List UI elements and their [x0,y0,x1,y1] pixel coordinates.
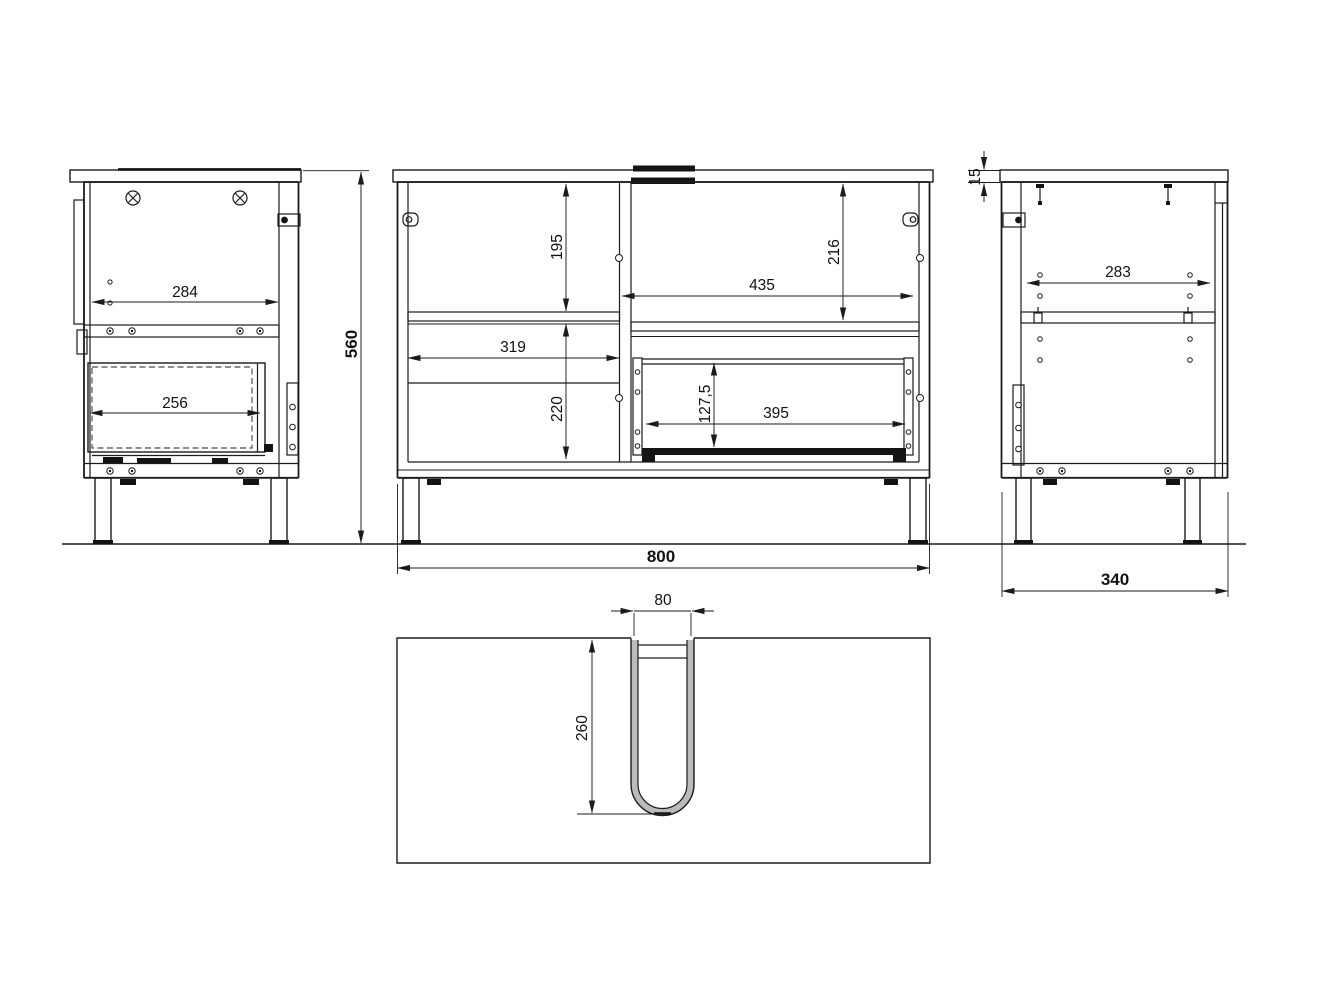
carcass-outline [84,182,299,478]
bottom-panel [84,464,299,475]
hinge-plate [1003,213,1025,227]
dim-label-284: 284 [172,284,198,301]
dim-front-left-lower-height: 220 [549,324,566,459]
carcass-outline [398,182,930,478]
carcass-outline [1002,182,1228,478]
bottom-panel [1002,464,1228,475]
countertop-side [70,170,301,182]
side-view-left [70,169,301,544]
back-panel-outline [397,638,930,863]
dim-overall-height: 560 [303,171,369,543]
dim-label-800: 800 [647,547,675,566]
screw-icon [233,191,247,205]
drawer-slide-bracket [642,448,655,462]
legs [1014,478,1202,545]
dim-front-left-upper-height: 195 [549,184,566,311]
dim-side-left-drawer-depth: 256 [90,395,260,413]
dim-label-260: 260 [574,715,591,741]
technical-drawing-page: 284 256 560 195 216 435 319 [0,0,1319,989]
cam-lock-left [403,213,418,226]
pipe-cutout [631,638,694,816]
dim-label-395: 395 [763,405,789,422]
legs [401,478,928,545]
dim-label-195: 195 [549,234,566,260]
fixing-bolt-icon [1036,184,1044,205]
dim-front-left-inner-width: 319 [408,339,619,358]
dim-label-560: 560 [342,330,361,358]
drawer-slide-mechanism [92,456,265,465]
dim-label-15: 15 [967,168,984,185]
dim-label-435: 435 [749,277,775,294]
shelf-pin-holes [108,280,112,305]
countertop-side [1000,170,1228,182]
dim-label-283: 283 [1105,264,1131,281]
dim-label-127-5: 127,5 [697,385,714,424]
legs [93,478,289,545]
dim-side-left-inner-width: 284 [92,284,278,302]
drawer-slide-bar [654,448,894,455]
dim-side-right-inner-width: 283 [1027,264,1210,283]
dim-label-256: 256 [162,395,188,412]
hinge-plate [278,214,300,226]
dim-overall-width: 800 [398,484,930,574]
dim-label-216: 216 [826,239,843,265]
center-divider [620,182,632,462]
back-panel-rail [74,200,87,354]
dim-label-220: 220 [549,396,566,422]
drawer-slide-bracket [893,448,906,462]
dim-label-80: 80 [654,592,672,609]
cam-lock-right [903,213,918,226]
dim-drawer-front-height: 127,5 [697,363,714,447]
right-shelf [631,322,919,337]
bottom-view [397,638,930,863]
cabinet-technical-drawing: 284 256 560 195 216 435 319 [0,0,1319,989]
dim-label-319: 319 [500,339,526,356]
dim-cutout-width: 80 [611,592,714,636]
dim-front-right-upper-height: 216 [826,184,843,320]
dim-label-340: 340 [1101,570,1129,589]
drawer-front-rail [1013,385,1024,465]
drawer-front-rail [287,383,298,455]
mid-rail [84,325,279,337]
dim-countertop-thickness: 15 [967,151,1000,202]
front-view [393,166,933,545]
dim-cutout-depth: 260 [574,640,662,814]
side-view-right [1000,170,1228,545]
dim-front-right-inner-width: 435 [622,277,913,296]
mid-rail [1021,307,1215,323]
dimensions: 284 256 560 195 216 435 319 [90,151,1228,814]
fixing-bolt-icon [1164,184,1172,205]
screw-icon [126,191,140,205]
shelf-pin-holes [1038,273,1193,363]
dim-drawer-inner-width: 395 [646,405,905,424]
